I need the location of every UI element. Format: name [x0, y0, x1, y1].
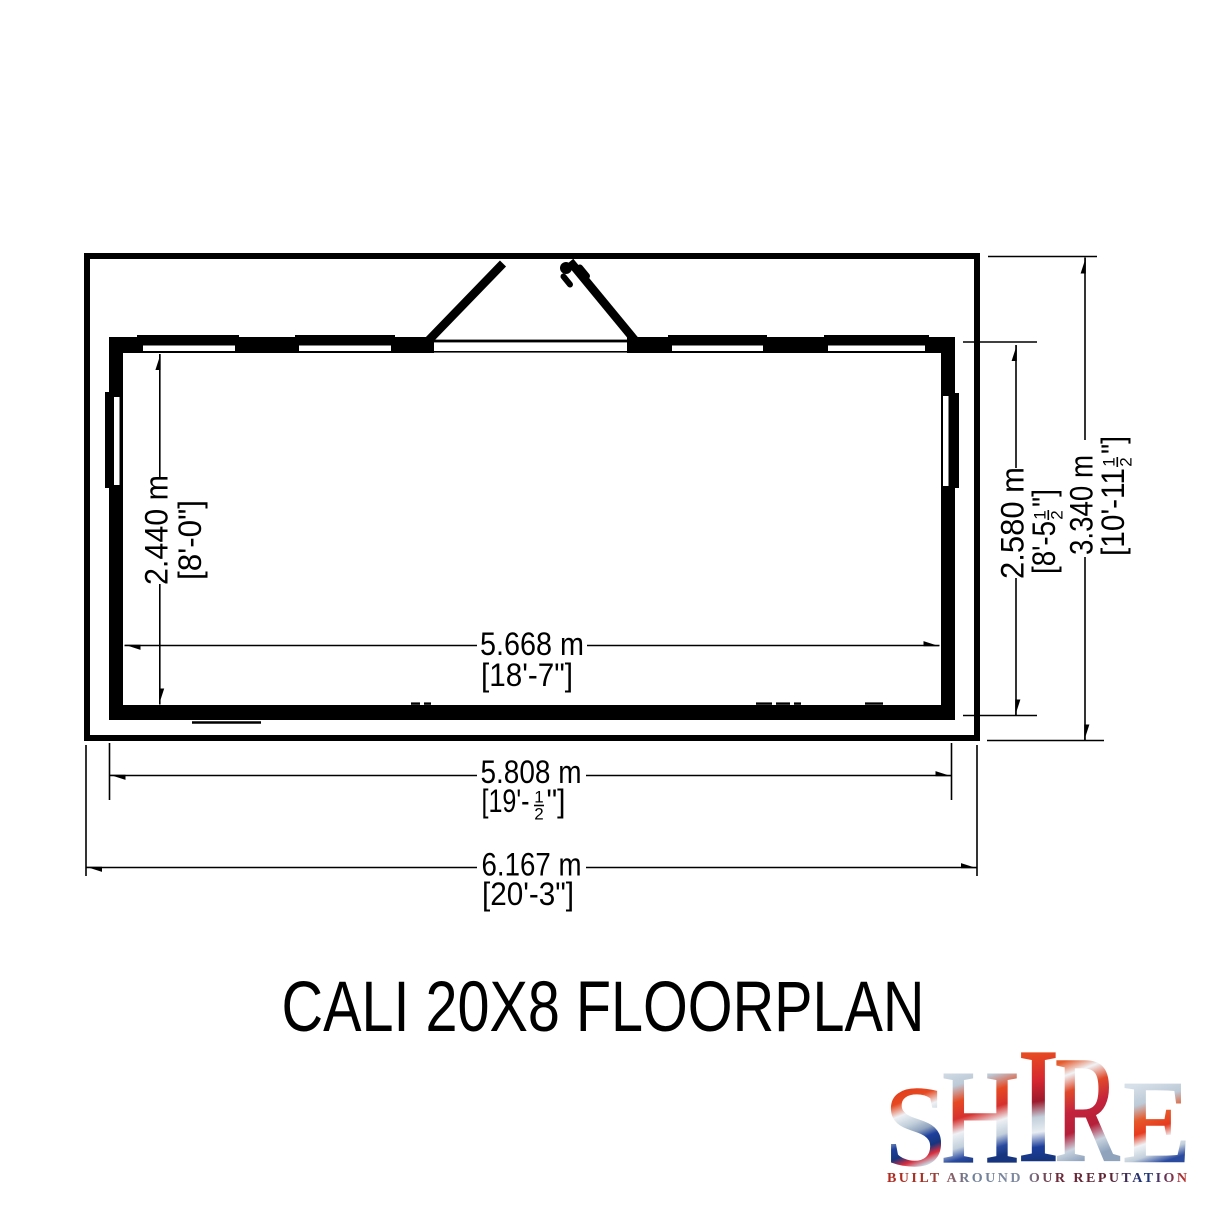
svg-text:"]: "]: [1095, 436, 1131, 454]
svg-text:[10'-11: [10'-11: [1095, 468, 1131, 556]
svg-text:"]: "]: [1026, 489, 1062, 507]
svg-text:H: H: [941, 1043, 1019, 1191]
svg-text:[8'-0"]: [8'-0"]: [172, 500, 208, 580]
svg-text:CALI 20X8 FLOORPLAN: CALI 20X8 FLOORPLAN: [282, 968, 925, 1047]
svg-text:I: I: [1017, 1014, 1060, 1196]
svg-text:[20'-3"]: [20'-3"]: [482, 876, 574, 912]
svg-text:[19'-: [19'-: [482, 783, 530, 819]
svg-text:"]: "]: [547, 783, 566, 819]
svg-text:2: 2: [1116, 457, 1135, 466]
svg-text:2: 2: [534, 805, 543, 824]
svg-text:[18'-7"]: [18'-7"]: [481, 657, 573, 693]
svg-text:[8'-5: [8'-5: [1026, 521, 1062, 574]
svg-text:2.440 m: 2.440 m: [138, 475, 174, 585]
svg-text:R: R: [1054, 1025, 1120, 1193]
svg-text:E: E: [1122, 1056, 1190, 1187]
